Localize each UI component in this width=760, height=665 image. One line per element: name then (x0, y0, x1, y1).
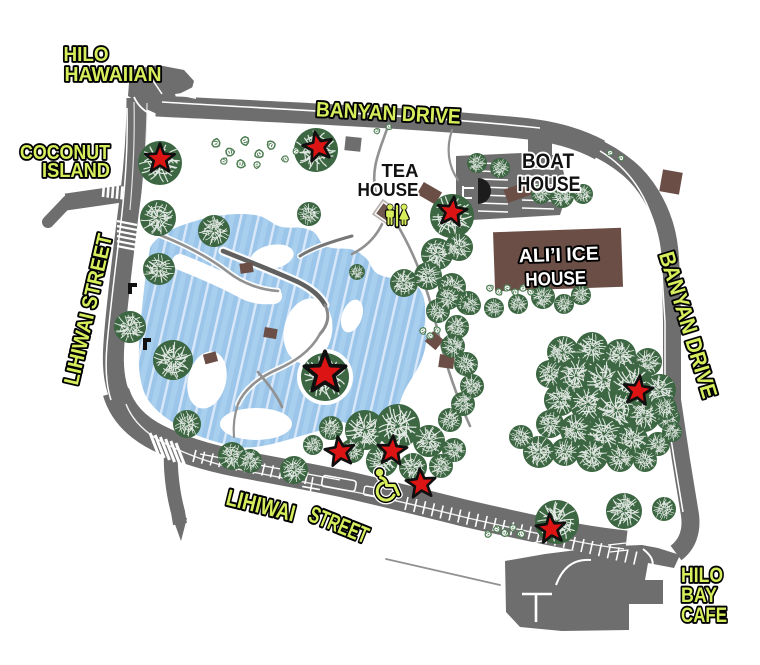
svg-text:HOUSE: HOUSE (518, 173, 581, 196)
svg-text:CAFE: CAFE (681, 604, 727, 627)
svg-text:HOUSE: HOUSE (358, 180, 419, 200)
svg-text:ISLAND: ISLAND (42, 160, 110, 182)
svg-text:TEA: TEA (382, 161, 419, 181)
svg-text:BOAT: BOAT (522, 150, 574, 173)
svg-text:HOUSE: HOUSE (525, 268, 587, 291)
svg-text:HILO: HILO (64, 44, 109, 66)
svg-text:HAWAIIAN: HAWAIIAN (65, 64, 162, 86)
svg-text:ALI’I ICE: ALI’I ICE (518, 244, 599, 268)
